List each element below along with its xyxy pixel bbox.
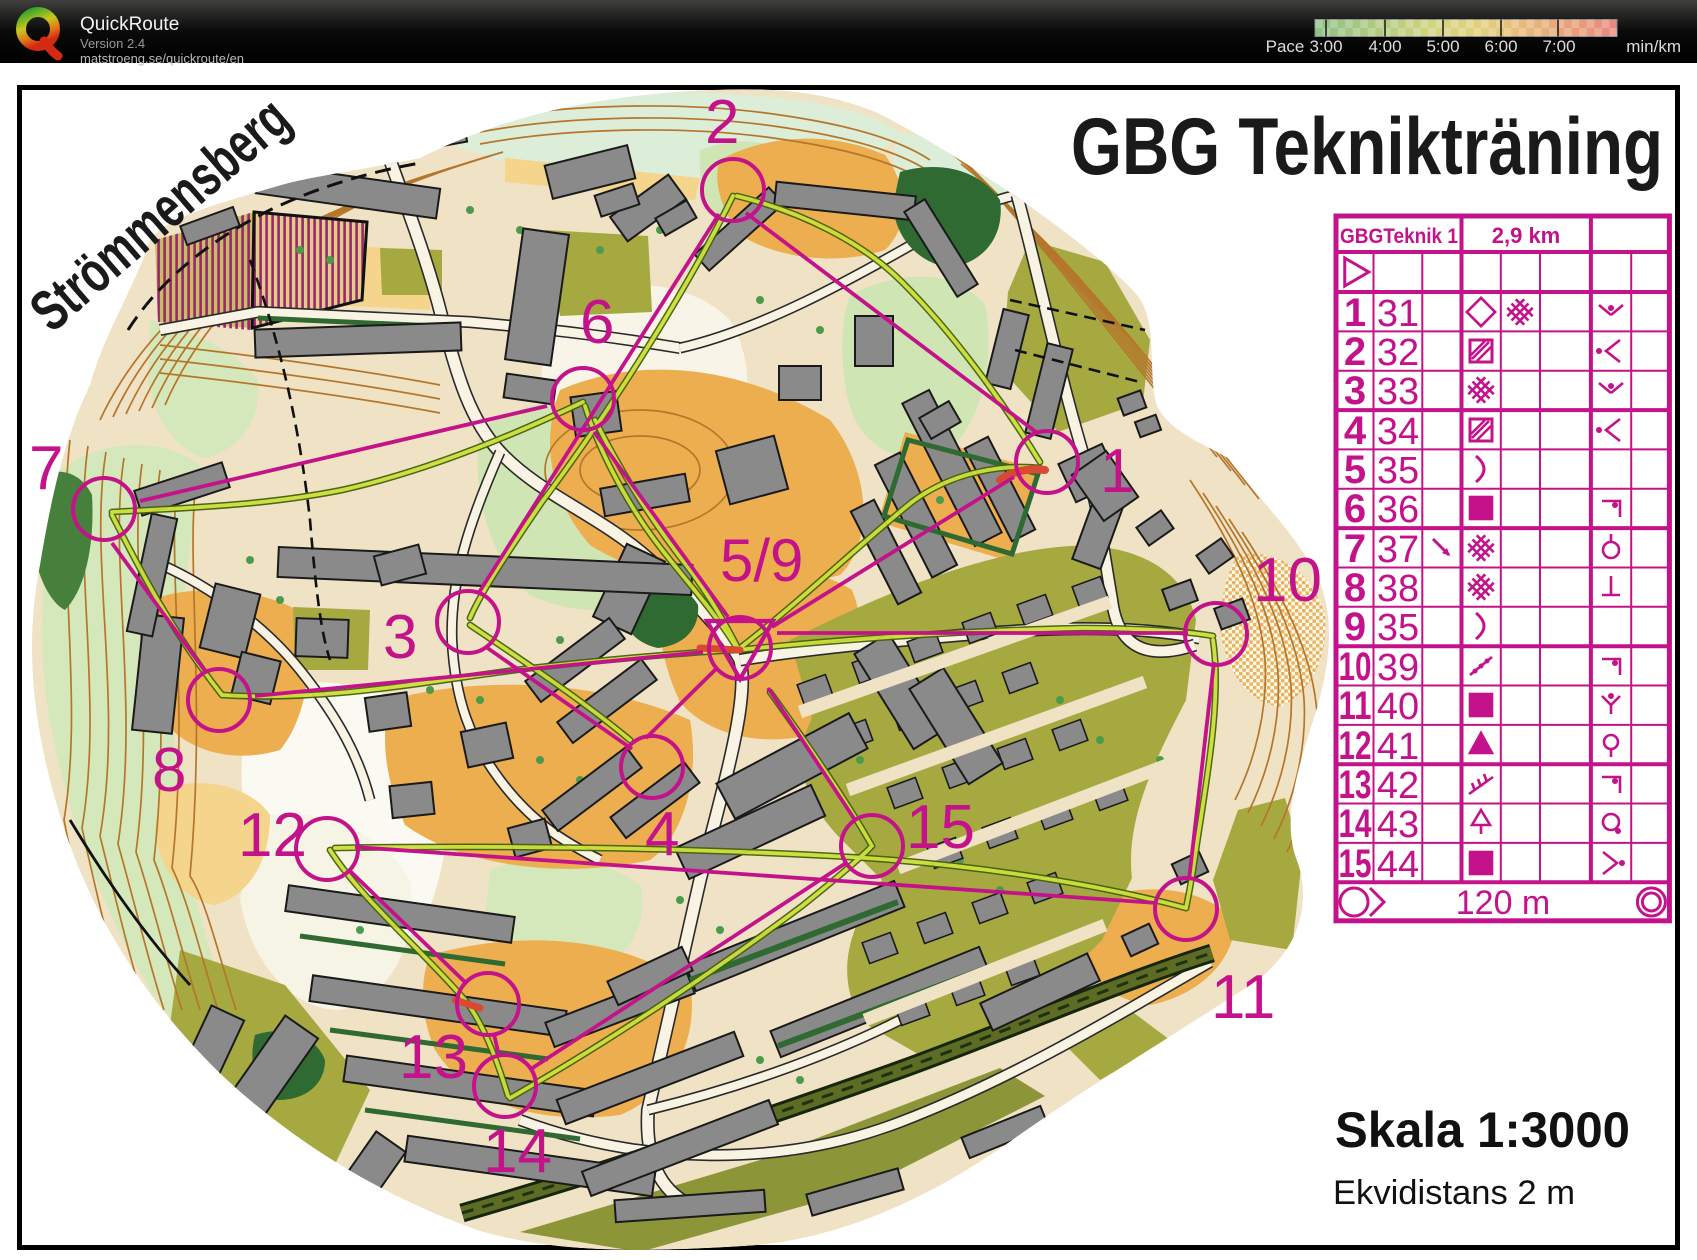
svg-text:6: 6: [1344, 487, 1366, 531]
svg-text:5: 5: [1344, 448, 1366, 492]
svg-text:15: 15: [906, 793, 975, 862]
svg-text:3:00: 3:00: [1309, 37, 1342, 56]
svg-text:GBG Teknikträning: GBG Teknikträning: [1071, 102, 1663, 192]
svg-text:41: 41: [1377, 726, 1419, 768]
svg-text:11: 11: [1339, 684, 1372, 728]
svg-text:GBGTeknik 1: GBGTeknik 1: [1340, 225, 1458, 248]
svg-text:5/9: 5/9: [720, 527, 803, 594]
svg-text:32: 32: [1377, 332, 1419, 374]
svg-text:40: 40: [1377, 686, 1419, 728]
svg-text:12: 12: [1339, 724, 1372, 768]
svg-text:1: 1: [1100, 437, 1134, 506]
svg-text:7: 7: [29, 434, 63, 503]
svg-text:4: 4: [645, 800, 679, 869]
svg-text:33: 33: [1377, 371, 1419, 413]
svg-text:11: 11: [1211, 963, 1275, 1032]
svg-text:37: 37: [1377, 529, 1419, 571]
svg-text:8: 8: [1344, 566, 1366, 610]
svg-text:QuickRoute: QuickRoute: [80, 14, 179, 35]
svg-text:7:00: 7:00: [1542, 37, 1575, 56]
svg-text:10: 10: [1253, 546, 1322, 615]
svg-text:12: 12: [238, 801, 307, 870]
svg-text:Pace: Pace: [1266, 37, 1305, 56]
svg-text:Version 2.4: Version 2.4: [80, 36, 145, 51]
svg-text:9: 9: [1344, 605, 1366, 649]
svg-text:2,9 km: 2,9 km: [1492, 223, 1561, 248]
svg-text:5:00: 5:00: [1426, 37, 1459, 56]
svg-text:13: 13: [1339, 763, 1372, 807]
svg-text:3: 3: [383, 603, 417, 672]
svg-text:min/km: min/km: [1626, 37, 1681, 56]
svg-text:36: 36: [1377, 489, 1419, 531]
svg-text:7: 7: [1344, 527, 1366, 571]
svg-text:4:00: 4:00: [1368, 37, 1401, 56]
svg-text:Skala 1:3000: Skala 1:3000: [1335, 1102, 1630, 1158]
svg-text:8: 8: [152, 736, 186, 805]
svg-text:10: 10: [1339, 645, 1372, 689]
svg-text:13: 13: [399, 1023, 468, 1092]
svg-text:42: 42: [1377, 765, 1419, 807]
svg-text:35: 35: [1377, 450, 1419, 492]
svg-text:31: 31: [1377, 293, 1419, 335]
svg-text:3: 3: [1344, 369, 1366, 413]
svg-text:6: 6: [580, 288, 614, 357]
svg-text:34: 34: [1377, 411, 1419, 453]
svg-text:120 m: 120 m: [1456, 884, 1551, 922]
svg-text:35: 35: [1377, 607, 1419, 649]
svg-text:44: 44: [1377, 844, 1419, 886]
svg-text:38: 38: [1377, 568, 1419, 610]
svg-text:4: 4: [1344, 409, 1367, 453]
svg-text:matstroeng.se/quickroute/en: matstroeng.se/quickroute/en: [80, 51, 244, 66]
svg-text:6:00: 6:00: [1484, 37, 1517, 56]
svg-text:39: 39: [1377, 647, 1419, 689]
svg-text:43: 43: [1377, 804, 1419, 846]
svg-text:Ekvidistans 2 m: Ekvidistans 2 m: [1333, 1174, 1575, 1212]
svg-text:2: 2: [705, 88, 739, 157]
svg-text:14: 14: [483, 1117, 552, 1186]
svg-text:14: 14: [1339, 802, 1373, 846]
svg-text:2: 2: [1344, 330, 1366, 374]
svg-text:15: 15: [1339, 842, 1372, 886]
svg-text:1: 1: [1344, 291, 1366, 335]
